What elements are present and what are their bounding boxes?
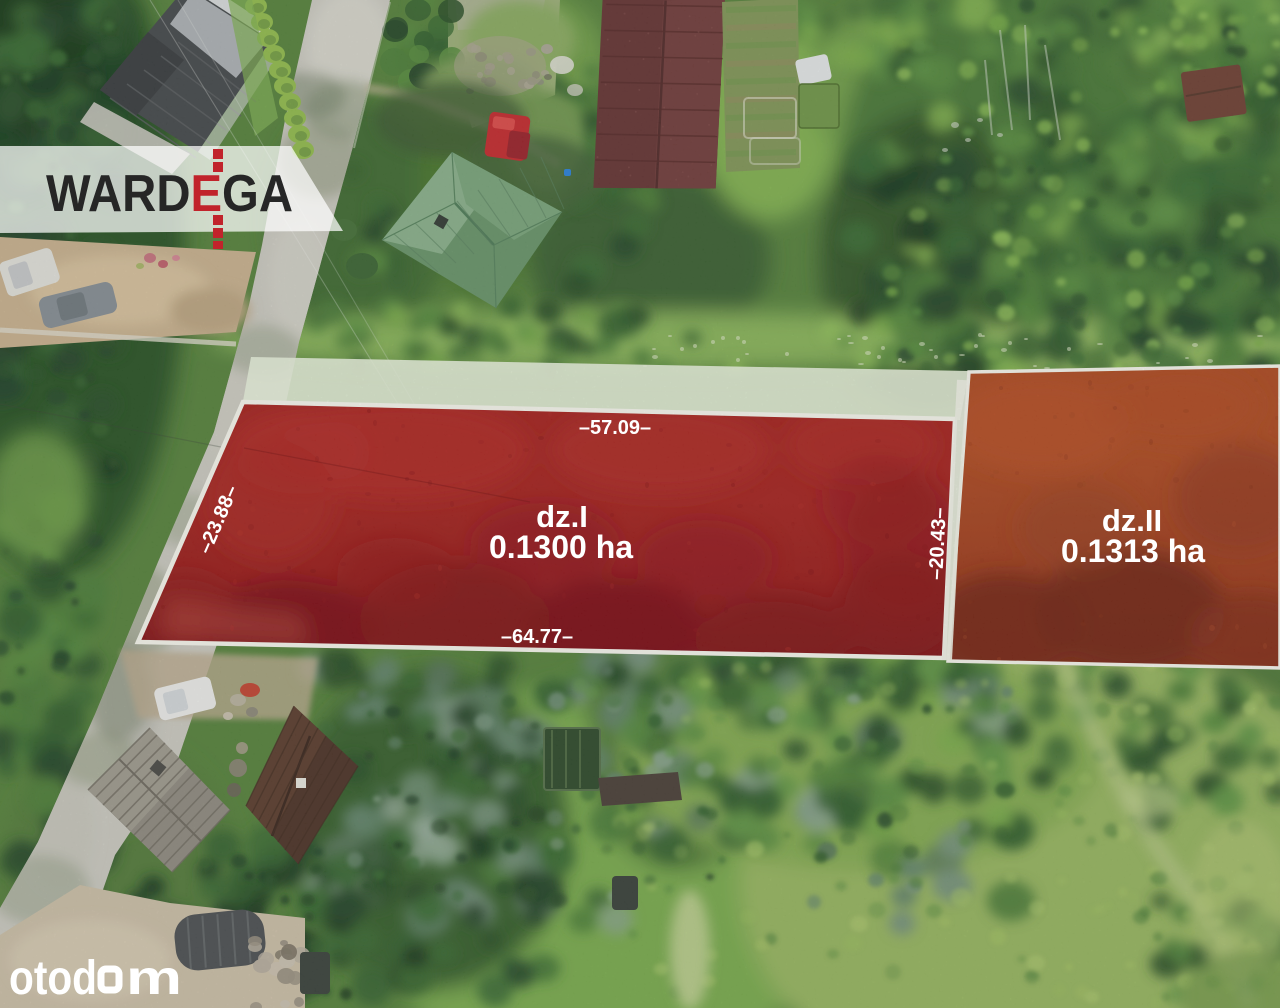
svg-text:otod: otod (9, 952, 97, 1005)
svg-text:–57.09–: –57.09– (579, 417, 651, 439)
svg-text:m: m (126, 952, 182, 1005)
svg-text:WARDEGA: WARDEGA (46, 165, 293, 223)
svg-text:–64.77–: –64.77– (501, 626, 573, 648)
svg-text:–20.43–: –20.43– (925, 507, 951, 580)
svg-text:0.1300 ha: 0.1300 ha (489, 529, 633, 565)
svg-text:0.1313 ha: 0.1313 ha (1061, 533, 1205, 569)
